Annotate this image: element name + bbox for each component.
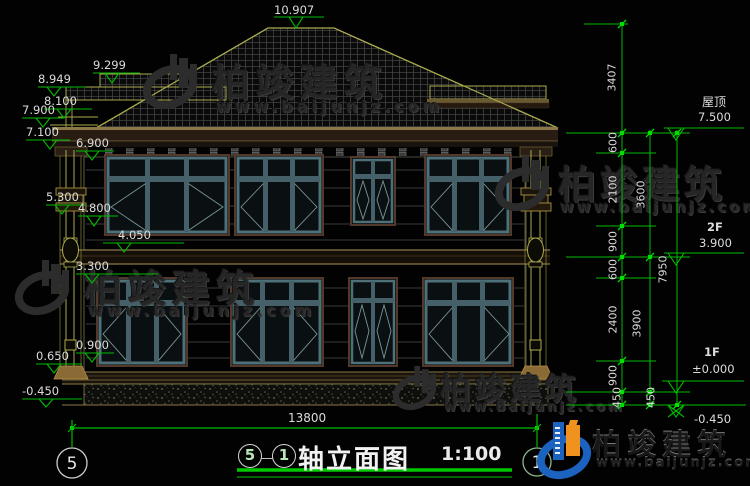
dim-600b: 600 [608, 248, 619, 292]
title-axis-to-bubble: 1 [272, 444, 296, 468]
elevation-6900: 6.900 [76, 138, 109, 150]
elevation-7900: 7.900 [22, 105, 55, 117]
elevation-9299: 9.299 [93, 60, 126, 72]
elevation-4800: 4.800 [78, 203, 111, 215]
brand-logo-windows [555, 426, 560, 454]
chain-nodes [70, 22, 679, 430]
dim-450a: 450 [612, 376, 623, 420]
dim-600a: 600 [608, 121, 619, 165]
brand-logo-tower-orange [566, 425, 580, 456]
elevation-4050: 4.050 [118, 230, 151, 242]
dimension-linework [0, 0, 750, 486]
elevation-0650: 0.650 [36, 351, 69, 363]
dimension-chains [566, 24, 690, 405]
elevation-neg0450: -0.450 [22, 386, 59, 398]
dim-3900: 3900 [632, 302, 643, 346]
roof-level-label: 屋顶 [702, 96, 726, 108]
elevation-5300: 5.300 [46, 192, 79, 204]
roof-level-value: 7.500 [698, 112, 731, 124]
dim-450b: 450 [646, 376, 657, 420]
elevation-3300: 3.300 [76, 261, 109, 273]
floor1-value: ±0.000 [692, 364, 735, 376]
elevation-8949: 8.949 [38, 74, 71, 86]
dim-3407: 3407 [607, 56, 618, 100]
drawing-scale: 1:100 [441, 443, 501, 465]
elevation-peak: 10.907 [274, 5, 314, 17]
elevation-drawing-canvas: 柏竣建筑 www.baijunjz.com 柏竣建筑 www.baijunjz.… [0, 0, 750, 486]
floor1-label: 1F [704, 347, 720, 359]
dim-2100: 2100 [608, 168, 619, 212]
elevation-7100: 7.100 [26, 127, 59, 139]
dim-2400: 2400 [608, 298, 619, 342]
floor2-value: 3.900 [699, 238, 732, 250]
title-axis-from-bubble: 5 [238, 444, 262, 468]
brand-logo-swoosh [530, 427, 598, 486]
overall-dimension-value: 13800 [288, 412, 326, 424]
dim-7950: 7950 [658, 248, 669, 292]
drawing-title: 轴立面图 [298, 439, 410, 476]
brand-url: www.baijunjz.com [596, 456, 750, 471]
floor2-label: 2F [707, 222, 723, 234]
axis-bubble-left: 5 [61, 454, 83, 474]
elevation-0900: 0.900 [76, 340, 109, 352]
brand-logo: 柏竣建筑 www.baijunjz.com [536, 420, 750, 480]
dim-3600: 3600 [636, 173, 647, 217]
